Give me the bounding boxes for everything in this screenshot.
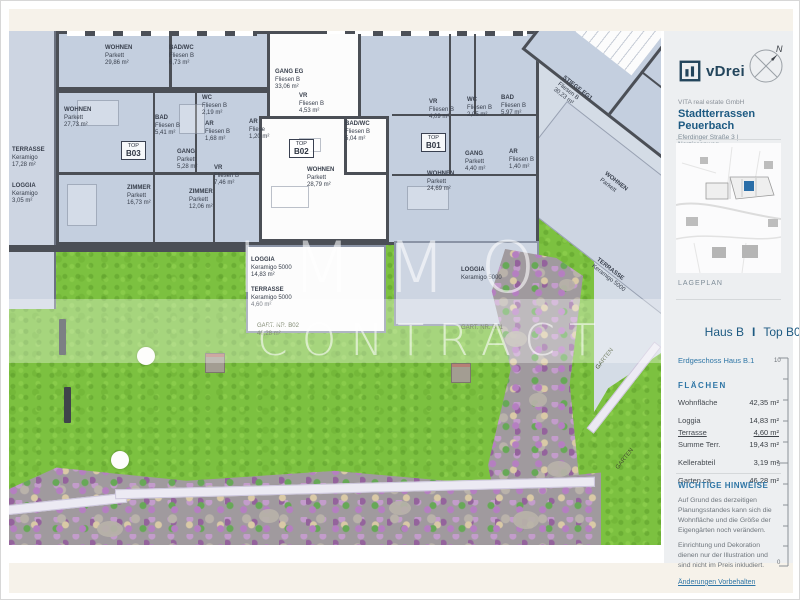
corridor-gang-eg bbox=[267, 34, 361, 116]
window-strip bbox=[67, 31, 257, 36]
areas-row-label: Wohnfläche bbox=[678, 398, 717, 407]
svg-text:N: N bbox=[776, 44, 783, 54]
watermark-band bbox=[9, 299, 661, 363]
divider bbox=[676, 473, 781, 474]
changes-reserved-note: Änderungen Vorbehalten bbox=[678, 579, 779, 586]
site-map bbox=[676, 143, 781, 273]
areas-row: Kellerabteil 3,19 m² bbox=[678, 458, 779, 467]
areas-row: Wohnfläche 42,35 m² bbox=[678, 398, 779, 407]
areas-row-label: Summe Terr. bbox=[678, 440, 720, 449]
vdrei-logo-icon bbox=[678, 59, 702, 83]
wall-segment bbox=[153, 93, 155, 242]
wall-segment bbox=[392, 174, 536, 176]
wall-segment bbox=[474, 34, 476, 114]
areas-table: Wohnfläche 42,35 m² Loggia 14,83 m² Terr… bbox=[678, 398, 779, 485]
furniture-outline bbox=[299, 138, 321, 152]
info-sidebar: vDrei N VITA real estate GmbH Stadtterra… bbox=[664, 31, 793, 563]
areas-row: Summe Terr. 19,43 m² bbox=[678, 440, 779, 449]
notes-heading: WICHTIGE HINWEISE bbox=[678, 481, 779, 490]
bottom-margin-band bbox=[9, 563, 793, 593]
note-paragraph: Einrichtung und Dekoration dienen nur de… bbox=[678, 541, 781, 571]
svg-text:10: 10 bbox=[774, 358, 781, 364]
wall-segment bbox=[59, 87, 267, 93]
areas-row-label: Loggia bbox=[678, 416, 701, 425]
wall-segment bbox=[213, 175, 215, 242]
areas-heading: FLÄCHEN bbox=[678, 381, 779, 390]
areas-row-label: Terrasse bbox=[678, 428, 707, 437]
furniture-outline bbox=[407, 186, 449, 210]
areas-row-label: Kellerabteil bbox=[678, 458, 715, 467]
areas-row: Loggia 14,83 m² bbox=[678, 416, 779, 425]
terrace-left-strip bbox=[9, 31, 56, 309]
note-paragraph: Auf Grund des derzeitigen Planungsstande… bbox=[678, 496, 781, 535]
wall-segment bbox=[344, 116, 347, 174]
notes-paragraphs: Auf Grund des derzeitigen Planungsstande… bbox=[678, 496, 779, 571]
vdrei-logo: vDrei bbox=[678, 59, 745, 83]
areas-row: Terrasse 4,60 m² bbox=[678, 428, 779, 437]
divider bbox=[676, 299, 781, 300]
unit-subtitle: Erdgeschoss Haus B.1 bbox=[678, 356, 779, 365]
floor-plan-canvas: WOHNENParkett29,86 m² BAD/WCFliesen B6,7… bbox=[9, 31, 661, 563]
unit-title: Haus BITop B02 bbox=[678, 311, 779, 353]
wall-segment bbox=[344, 172, 389, 175]
vdrei-logo-text: vDrei bbox=[706, 63, 745, 80]
wall-segment bbox=[392, 114, 536, 116]
furniture-outline bbox=[67, 184, 97, 226]
wall-segment bbox=[9, 245, 246, 252]
furniture-outline bbox=[179, 104, 205, 134]
furniture-outline bbox=[77, 100, 119, 126]
building-b bbox=[56, 31, 539, 245]
top-margin-band bbox=[9, 9, 793, 31]
plan-bottom-white bbox=[9, 545, 661, 563]
siteplan-label: LAGEPLAN bbox=[678, 280, 779, 287]
wall-segment bbox=[59, 172, 259, 175]
project-title: Stadtterrassen Peuerbach bbox=[678, 108, 779, 132]
furniture-outline bbox=[271, 186, 309, 208]
unit-b02 bbox=[259, 116, 389, 242]
wall-segment bbox=[449, 34, 451, 174]
page: WOHNENParkett29,86 m² BAD/WCFliesen B6,7… bbox=[0, 0, 800, 600]
compass-icon: N bbox=[745, 43, 787, 85]
wall-segment bbox=[169, 34, 172, 89]
divider bbox=[676, 139, 781, 140]
company-name: VITA real estate GmbH bbox=[678, 99, 779, 106]
